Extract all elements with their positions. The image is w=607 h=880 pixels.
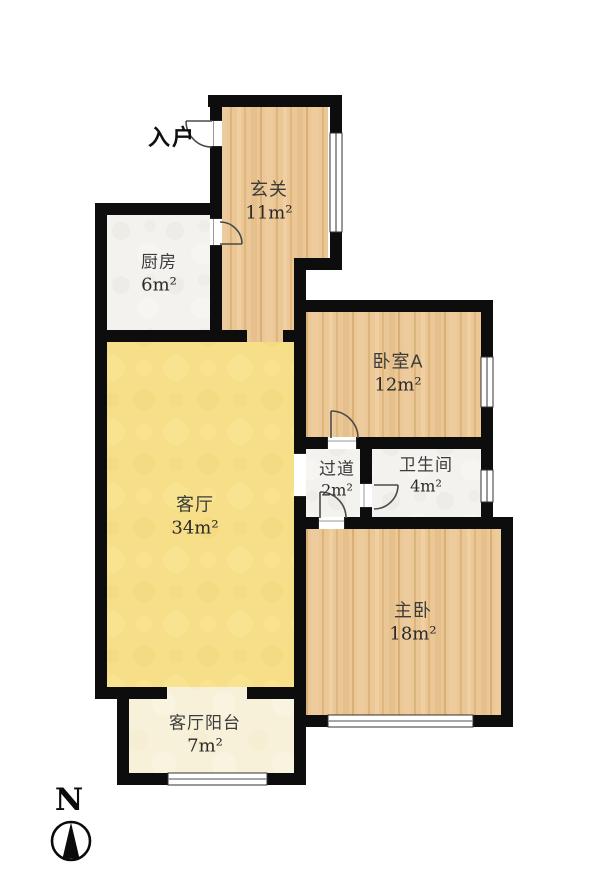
livingroom-balcony-opening xyxy=(167,687,247,699)
livingroom-hallway-opening xyxy=(294,453,306,497)
entrance-hall-window xyxy=(330,133,342,232)
entry-label: 入户 xyxy=(148,120,196,152)
entrance-hall-floor xyxy=(222,107,328,258)
north-arrow-icon xyxy=(49,819,93,863)
master-bedroom-window xyxy=(328,715,473,727)
kitchen-floor xyxy=(107,215,210,330)
bathroom-door-sill xyxy=(360,483,372,508)
entrance-corridor-floor xyxy=(222,258,294,342)
bedroom-a-door-sill xyxy=(327,437,357,449)
master-bedroom-floor xyxy=(306,529,501,715)
bathroom-floor xyxy=(372,449,481,517)
living-room-floor xyxy=(107,342,294,687)
entry-door-sill xyxy=(210,120,222,147)
hallway-floor xyxy=(306,449,360,517)
balcony-floor xyxy=(129,699,294,773)
floor-plan-drawing xyxy=(0,0,607,880)
bedroom-a-window xyxy=(481,357,493,407)
floor-plan: 入户 玄关 11m² 厨房 6m² 卧室A 12m² 过道 2m² 卫生间 4m… xyxy=(0,0,607,880)
master-bedroom-door-sill xyxy=(318,517,345,529)
balcony-window xyxy=(168,773,267,785)
corridor-livingroom-opening xyxy=(247,330,283,342)
bathroom-window xyxy=(481,470,493,502)
bedroom-a-floor xyxy=(306,312,481,437)
compass-north-label: N xyxy=(55,782,83,818)
